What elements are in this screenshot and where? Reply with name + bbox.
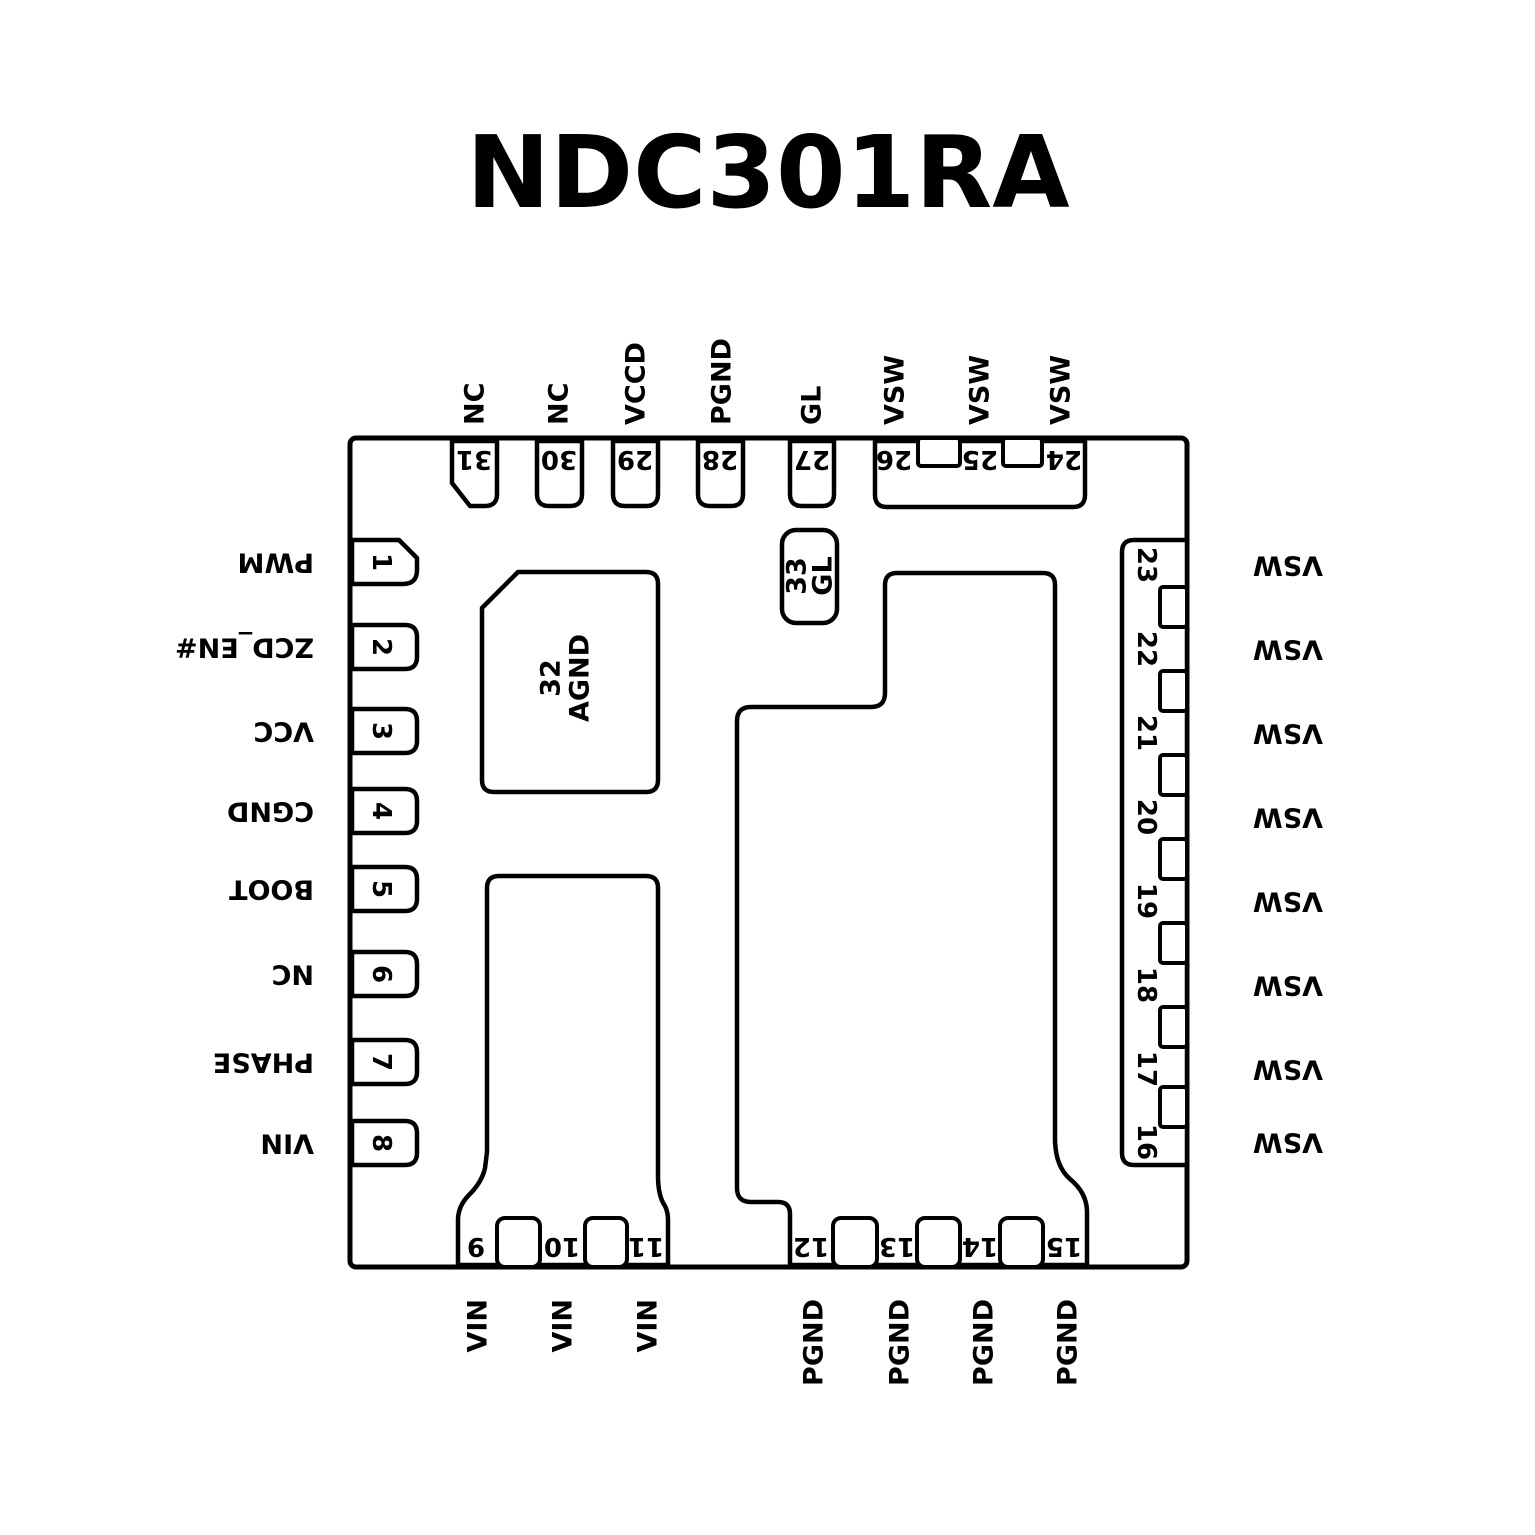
pin-label-8-vin: VIN (260, 1128, 314, 1159)
notch-right-17-16 (1160, 1087, 1187, 1127)
notch-right-18-17 (1160, 1007, 1187, 1047)
pin-label-10-vin: VIN (548, 1299, 579, 1353)
pin-label-25-vsw: VSW (965, 355, 996, 425)
pin-label-22-vsw: VSW (1253, 634, 1323, 665)
pin-label-2-zcd-en: ZCD_EN# (175, 632, 314, 663)
pin-number-8: 8 (366, 1134, 396, 1152)
pad-label-32-agnd: AGND (565, 634, 596, 722)
pin-number-28: 28 (702, 444, 738, 474)
pin-label-26-vsw: VSW (880, 355, 911, 425)
pin-label-1-pwm: PWM (238, 547, 314, 578)
notch-right-23-22 (1160, 587, 1187, 627)
pin-number-9: 9 (467, 1231, 485, 1261)
notch-top-26-25 (918, 438, 960, 466)
pin-label-23-vsw: VSW (1253, 550, 1323, 581)
pin-number-16: 16 (1131, 1124, 1161, 1160)
pin-label-29-vccd: VCCD (621, 342, 652, 425)
pin-number-30: 30 (541, 444, 577, 474)
pin-number-22: 22 (1131, 631, 1161, 667)
notch-right-21-20 (1160, 755, 1187, 795)
notch-bottom-14-15 (1000, 1218, 1043, 1267)
pin-label-6-nc: NC (272, 959, 314, 990)
pin-number-18: 18 (1131, 967, 1161, 1003)
pin-number-1: 1 (366, 553, 396, 571)
pin-number-2: 2 (366, 638, 396, 656)
pin-number-25: 25 (962, 444, 998, 474)
pin-label-7-phase: PHASE (213, 1047, 314, 1078)
pin-number-24: 24 (1046, 444, 1082, 474)
pinout-page: NDC301RA 31 30 29 28 27 26 25 24 NC NC V (0, 0, 1535, 1535)
chip-title: NDC301RA (466, 114, 1069, 231)
pin-label-14-pgnd: PGND (969, 1299, 1000, 1386)
pin-number-21: 21 (1131, 715, 1161, 751)
pin-label-24-vsw: VSW (1046, 355, 1077, 425)
notch-bottom-10-11 (585, 1218, 627, 1267)
pad-label-33-gl: GL (808, 556, 839, 595)
pin-label-9-vin: VIN (463, 1299, 494, 1353)
pin-number-14: 14 (962, 1231, 998, 1261)
notch-bottom-13-14 (917, 1218, 960, 1267)
pin-number-7: 7 (366, 1053, 396, 1071)
notch-bottom-9-10 (497, 1218, 540, 1267)
pin-label-16-vsw: VSW (1253, 1127, 1323, 1158)
pin-label-27-gl: GL (797, 386, 828, 425)
pinout-diagram: NDC301RA 31 30 29 28 27 26 25 24 NC NC V (0, 0, 1535, 1535)
pin-number-27: 27 (794, 444, 830, 474)
pin-number-11: 11 (628, 1231, 664, 1261)
pin-label-17-vsw: VSW (1253, 1054, 1323, 1085)
pin-label-28-pgnd: PGND (707, 338, 738, 425)
pin-label-3-vcc: VCC (253, 716, 314, 747)
notch-right-20-19 (1160, 839, 1187, 879)
pin-number-31: 31 (456, 444, 492, 474)
pin-number-6: 6 (366, 965, 396, 983)
pad-vin-region (458, 876, 668, 1265)
notch-top-25-24 (1003, 438, 1042, 466)
pin-label-30-nc: NC (544, 383, 575, 425)
pin-label-5-boot: BOOT (229, 874, 314, 905)
pin-number-13: 13 (879, 1231, 915, 1261)
pin-number-20: 20 (1131, 799, 1161, 835)
notch-bottom-12-13 (833, 1218, 877, 1267)
pin-label-20-vsw: VSW (1253, 802, 1323, 833)
pin-label-19-vsw: VSW (1253, 886, 1323, 917)
notch-right-22-21 (1160, 671, 1187, 711)
pin-label-4-cgnd: CGND (227, 796, 314, 827)
notch-right-19-18 (1160, 923, 1187, 963)
pin-number-26: 26 (876, 444, 912, 474)
pin-number-23: 23 (1131, 547, 1161, 583)
pin-label-31-nc: NC (460, 383, 491, 425)
pin-number-5: 5 (366, 880, 396, 898)
pin-number-17: 17 (1131, 1051, 1161, 1087)
pin-number-15: 15 (1046, 1231, 1082, 1261)
pin-label-18-vsw: VSW (1253, 970, 1323, 1001)
pin-label-13-pgnd: PGND (885, 1299, 916, 1386)
pin-number-12: 12 (793, 1231, 829, 1261)
pin-number-29: 29 (617, 444, 653, 474)
pin-label-21-vsw: VSW (1253, 718, 1323, 749)
pin-label-12-pgnd: PGND (799, 1299, 830, 1386)
pad-number-32: 32 (536, 659, 567, 697)
pin-number-4: 4 (366, 802, 396, 820)
pin-number-3: 3 (366, 722, 396, 740)
pin-label-15-pgnd: PGND (1053, 1299, 1084, 1386)
pin-label-11-vin: VIN (633, 1299, 664, 1353)
pin-number-19: 19 (1131, 883, 1161, 919)
pin-number-10: 10 (544, 1231, 580, 1261)
